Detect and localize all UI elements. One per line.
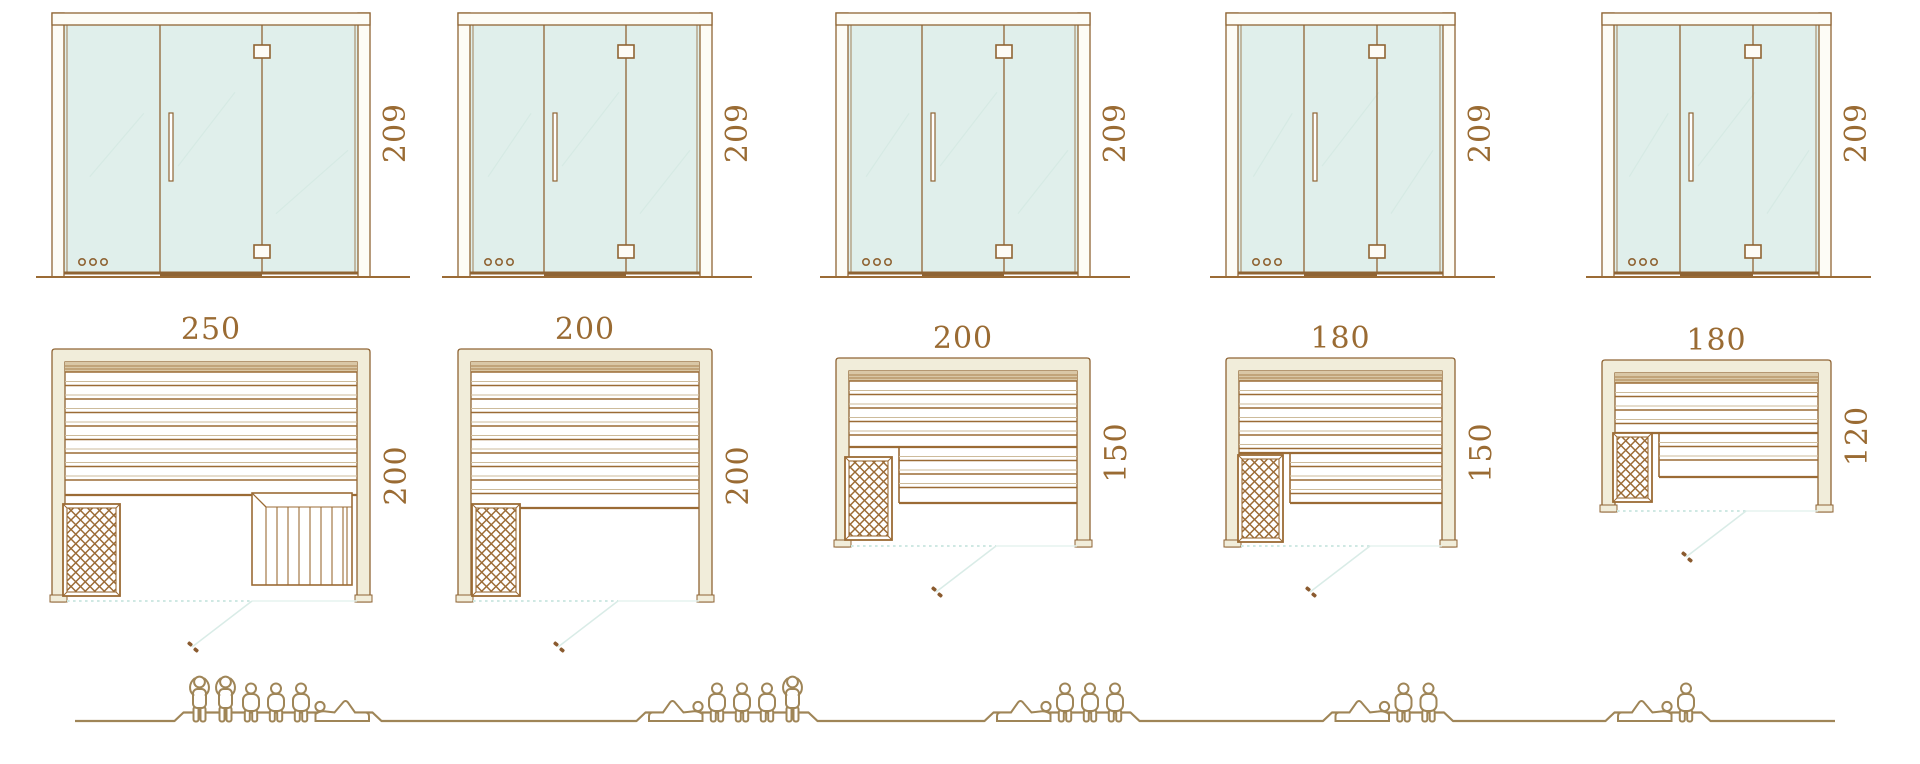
- bench-slats: [849, 391, 1077, 448]
- bench-slats: [65, 382, 357, 496]
- left-post: [458, 13, 470, 277]
- plan-depth-label: 200: [379, 445, 414, 505]
- backrest-band: [471, 362, 699, 372]
- elevation-height-label: 209: [378, 103, 413, 163]
- plan-sauna-200x150: 200150: [834, 321, 1134, 598]
- door-hinge-icon: [1369, 245, 1385, 258]
- glass-panels: [64, 25, 358, 273]
- door-hinge-icon: [1745, 45, 1761, 58]
- elevation-sauna-250x200: 209: [36, 13, 413, 277]
- capacity-group-6-persons: [190, 677, 369, 722]
- plan-width-label: 250: [181, 312, 241, 347]
- top-beam: [52, 13, 370, 25]
- plan-depth-label: 150: [1099, 422, 1134, 482]
- bench-slats: [1615, 393, 1818, 434]
- plan-sauna-200x200: 200200: [456, 312, 756, 653]
- backrest-band: [1239, 371, 1442, 381]
- backrest-band: [65, 362, 357, 372]
- diagram-svg: 2092502002092002002092001502091801502091…: [0, 0, 1920, 764]
- top-beam: [1226, 13, 1455, 25]
- bench-slats: [1239, 391, 1442, 454]
- backrest-band: [849, 371, 1077, 381]
- door-swing: [851, 546, 1077, 598]
- elevation-height-label: 209: [1463, 103, 1498, 163]
- plan-depth-label: 200: [721, 445, 756, 505]
- door-hinge-icon: [996, 45, 1012, 58]
- right-post: [1078, 13, 1090, 277]
- lower-bench-slats: [899, 447, 1077, 503]
- right-post: [1819, 13, 1831, 277]
- capacity-group-3-persons: [1336, 684, 1437, 722]
- glass-panels: [1238, 25, 1443, 273]
- plan-depth-label: 150: [1464, 422, 1499, 482]
- door-handle: [1313, 113, 1317, 181]
- glass-panels: [1614, 25, 1819, 273]
- door-hinge-icon: [618, 245, 634, 258]
- door-handle: [553, 113, 557, 181]
- glass-panels: [470, 25, 700, 273]
- right-post: [1443, 13, 1455, 277]
- door-handle: [931, 113, 935, 181]
- capacity-group-4-persons: [997, 684, 1123, 722]
- glass-panels: [848, 25, 1078, 273]
- door-hinge-icon: [254, 45, 270, 58]
- door-swing: [1241, 546, 1442, 598]
- door-handle: [1689, 113, 1693, 181]
- right-post: [358, 13, 370, 277]
- top-beam: [1602, 13, 1831, 25]
- door-hinge-icon: [1369, 45, 1385, 58]
- backrest-band: [1615, 373, 1818, 383]
- capacity-group-5-persons: [649, 677, 802, 722]
- heater-icon: [1238, 455, 1283, 542]
- plan-width-label: 180: [1310, 321, 1370, 356]
- heater-icon: [472, 504, 520, 596]
- door-swing: [67, 601, 357, 653]
- heater-icon: [63, 504, 120, 596]
- elevation-sauna-180x120: 209: [1586, 13, 1874, 277]
- elevation-sauna-200x150: 209: [820, 13, 1133, 277]
- capacity-group-2-persons: [1618, 684, 1694, 722]
- door-swing: [473, 601, 699, 653]
- left-post: [1226, 13, 1238, 277]
- door-swing: [1617, 511, 1818, 563]
- heater-icon: [845, 457, 892, 540]
- plan-width-label: 200: [933, 321, 993, 356]
- left-post: [1602, 13, 1614, 277]
- lower-bench-slats: [1659, 433, 1818, 477]
- left-post: [52, 13, 64, 277]
- plan-sauna-180x120: 180120: [1600, 323, 1875, 563]
- right-post: [700, 13, 712, 277]
- door-handle: [169, 113, 173, 181]
- heater-icon: [1613, 433, 1652, 502]
- plan-sauna-180x150: 180150: [1224, 321, 1499, 598]
- door-hinge-icon: [996, 245, 1012, 258]
- elevation-sauna-180x150: 209: [1210, 13, 1498, 277]
- elevation-sauna-200x200: 209: [442, 13, 755, 277]
- elevation-height-label: 209: [720, 103, 755, 163]
- top-beam: [458, 13, 712, 25]
- plan-sauna-250x200: 250200: [50, 312, 414, 653]
- elevation-height-label: 209: [1839, 103, 1874, 163]
- left-post: [836, 13, 848, 277]
- plan-width-label: 200: [555, 312, 615, 347]
- plan-width-label: 180: [1686, 323, 1746, 358]
- plan-depth-label: 120: [1840, 406, 1875, 466]
- step-bench: [252, 493, 352, 585]
- bench-slats: [471, 382, 699, 509]
- lower-bench-slats: [1290, 453, 1442, 503]
- door-hinge-icon: [618, 45, 634, 58]
- door-hinge-icon: [254, 245, 270, 258]
- elevation-height-label: 209: [1098, 103, 1133, 163]
- sauna-comparison-canvas: 2092502002092002002092001502091801502091…: [0, 0, 1920, 764]
- capacity-row: [75, 677, 1835, 722]
- door-hinge-icon: [1745, 245, 1761, 258]
- top-beam: [836, 13, 1090, 25]
